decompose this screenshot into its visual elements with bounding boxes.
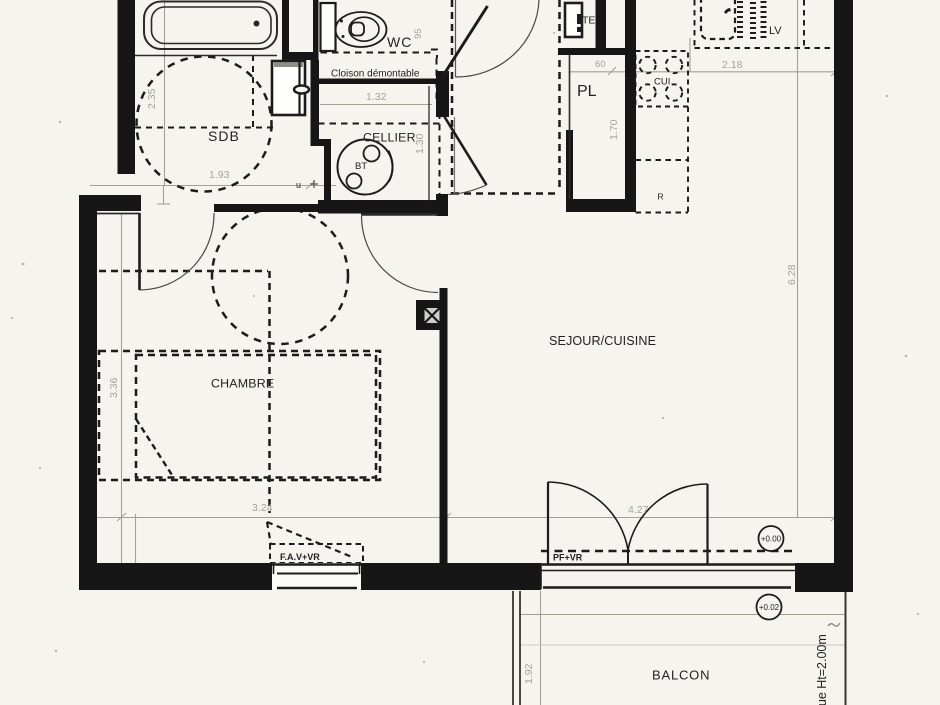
svg-text:2.18: 2.18: [722, 59, 743, 71]
svg-text:1.70: 1.70: [608, 119, 620, 140]
svg-text:PL: PL: [577, 83, 597, 100]
svg-text:1.93: 1.93: [209, 169, 230, 181]
svg-text:TE: TE: [582, 15, 595, 27]
svg-text:4.27: 4.27: [628, 504, 649, 516]
svg-text:SEJOUR/CUISINE: SEJOUR/CUISINE: [549, 334, 656, 348]
svg-text:1.92: 1.92: [523, 663, 535, 684]
svg-text:CELLIER: CELLIER: [363, 131, 416, 145]
svg-text:BT: BT: [355, 161, 367, 172]
svg-text:+0.00: +0.00: [761, 535, 782, 544]
svg-text:2.35: 2.35: [146, 88, 158, 109]
svg-text:Cloison démontable: Cloison démontable: [331, 69, 420, 80]
svg-text:+0.02: +0.02: [759, 603, 780, 612]
svg-text:R: R: [658, 192, 664, 202]
svg-text:1.32: 1.32: [366, 91, 387, 103]
svg-text:PF+VR: PF+VR: [553, 553, 583, 563]
svg-text:SDB: SDB: [208, 128, 240, 144]
svg-text:6.28: 6.28: [786, 264, 798, 285]
svg-text:3.36: 3.36: [108, 377, 120, 398]
svg-text:WC: WC: [387, 34, 412, 50]
svg-text:CHAMBRE: CHAMBRE: [211, 377, 274, 391]
svg-text:3.24: 3.24: [252, 502, 273, 514]
svg-text:u: u: [296, 180, 301, 190]
svg-text:95: 95: [413, 28, 424, 39]
svg-text:1.30: 1.30: [414, 133, 426, 154]
svg-text:Vue Ht=2.00m: Vue Ht=2.00m: [815, 634, 829, 705]
svg-text:CUI: CUI: [654, 77, 670, 88]
svg-text:60: 60: [595, 59, 606, 70]
svg-text:LV: LV: [769, 25, 782, 37]
svg-text:F.A.V+VR: F.A.V+VR: [280, 552, 320, 562]
svg-text:BALCON: BALCON: [652, 668, 710, 683]
